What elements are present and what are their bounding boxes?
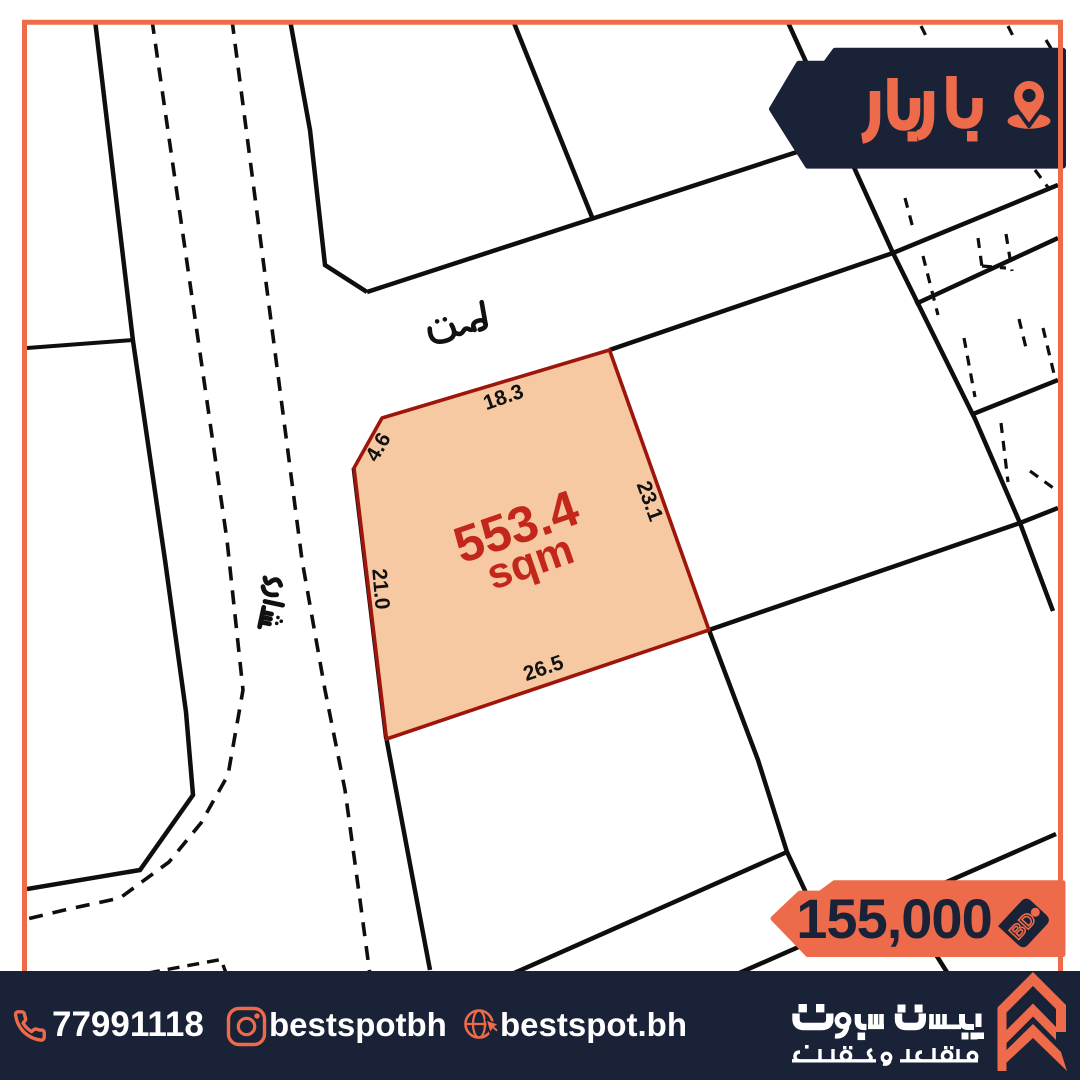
svg-text:bestspot.bh: bestspot.bh bbox=[500, 1006, 687, 1043]
svg-text:155,000: 155,000 bbox=[796, 887, 991, 950]
svg-text:21.0: 21.0 bbox=[367, 568, 393, 611]
svg-text:bestspotbh: bestspotbh bbox=[269, 1006, 447, 1043]
svg-text:77991118: 77991118 bbox=[52, 1005, 204, 1044]
